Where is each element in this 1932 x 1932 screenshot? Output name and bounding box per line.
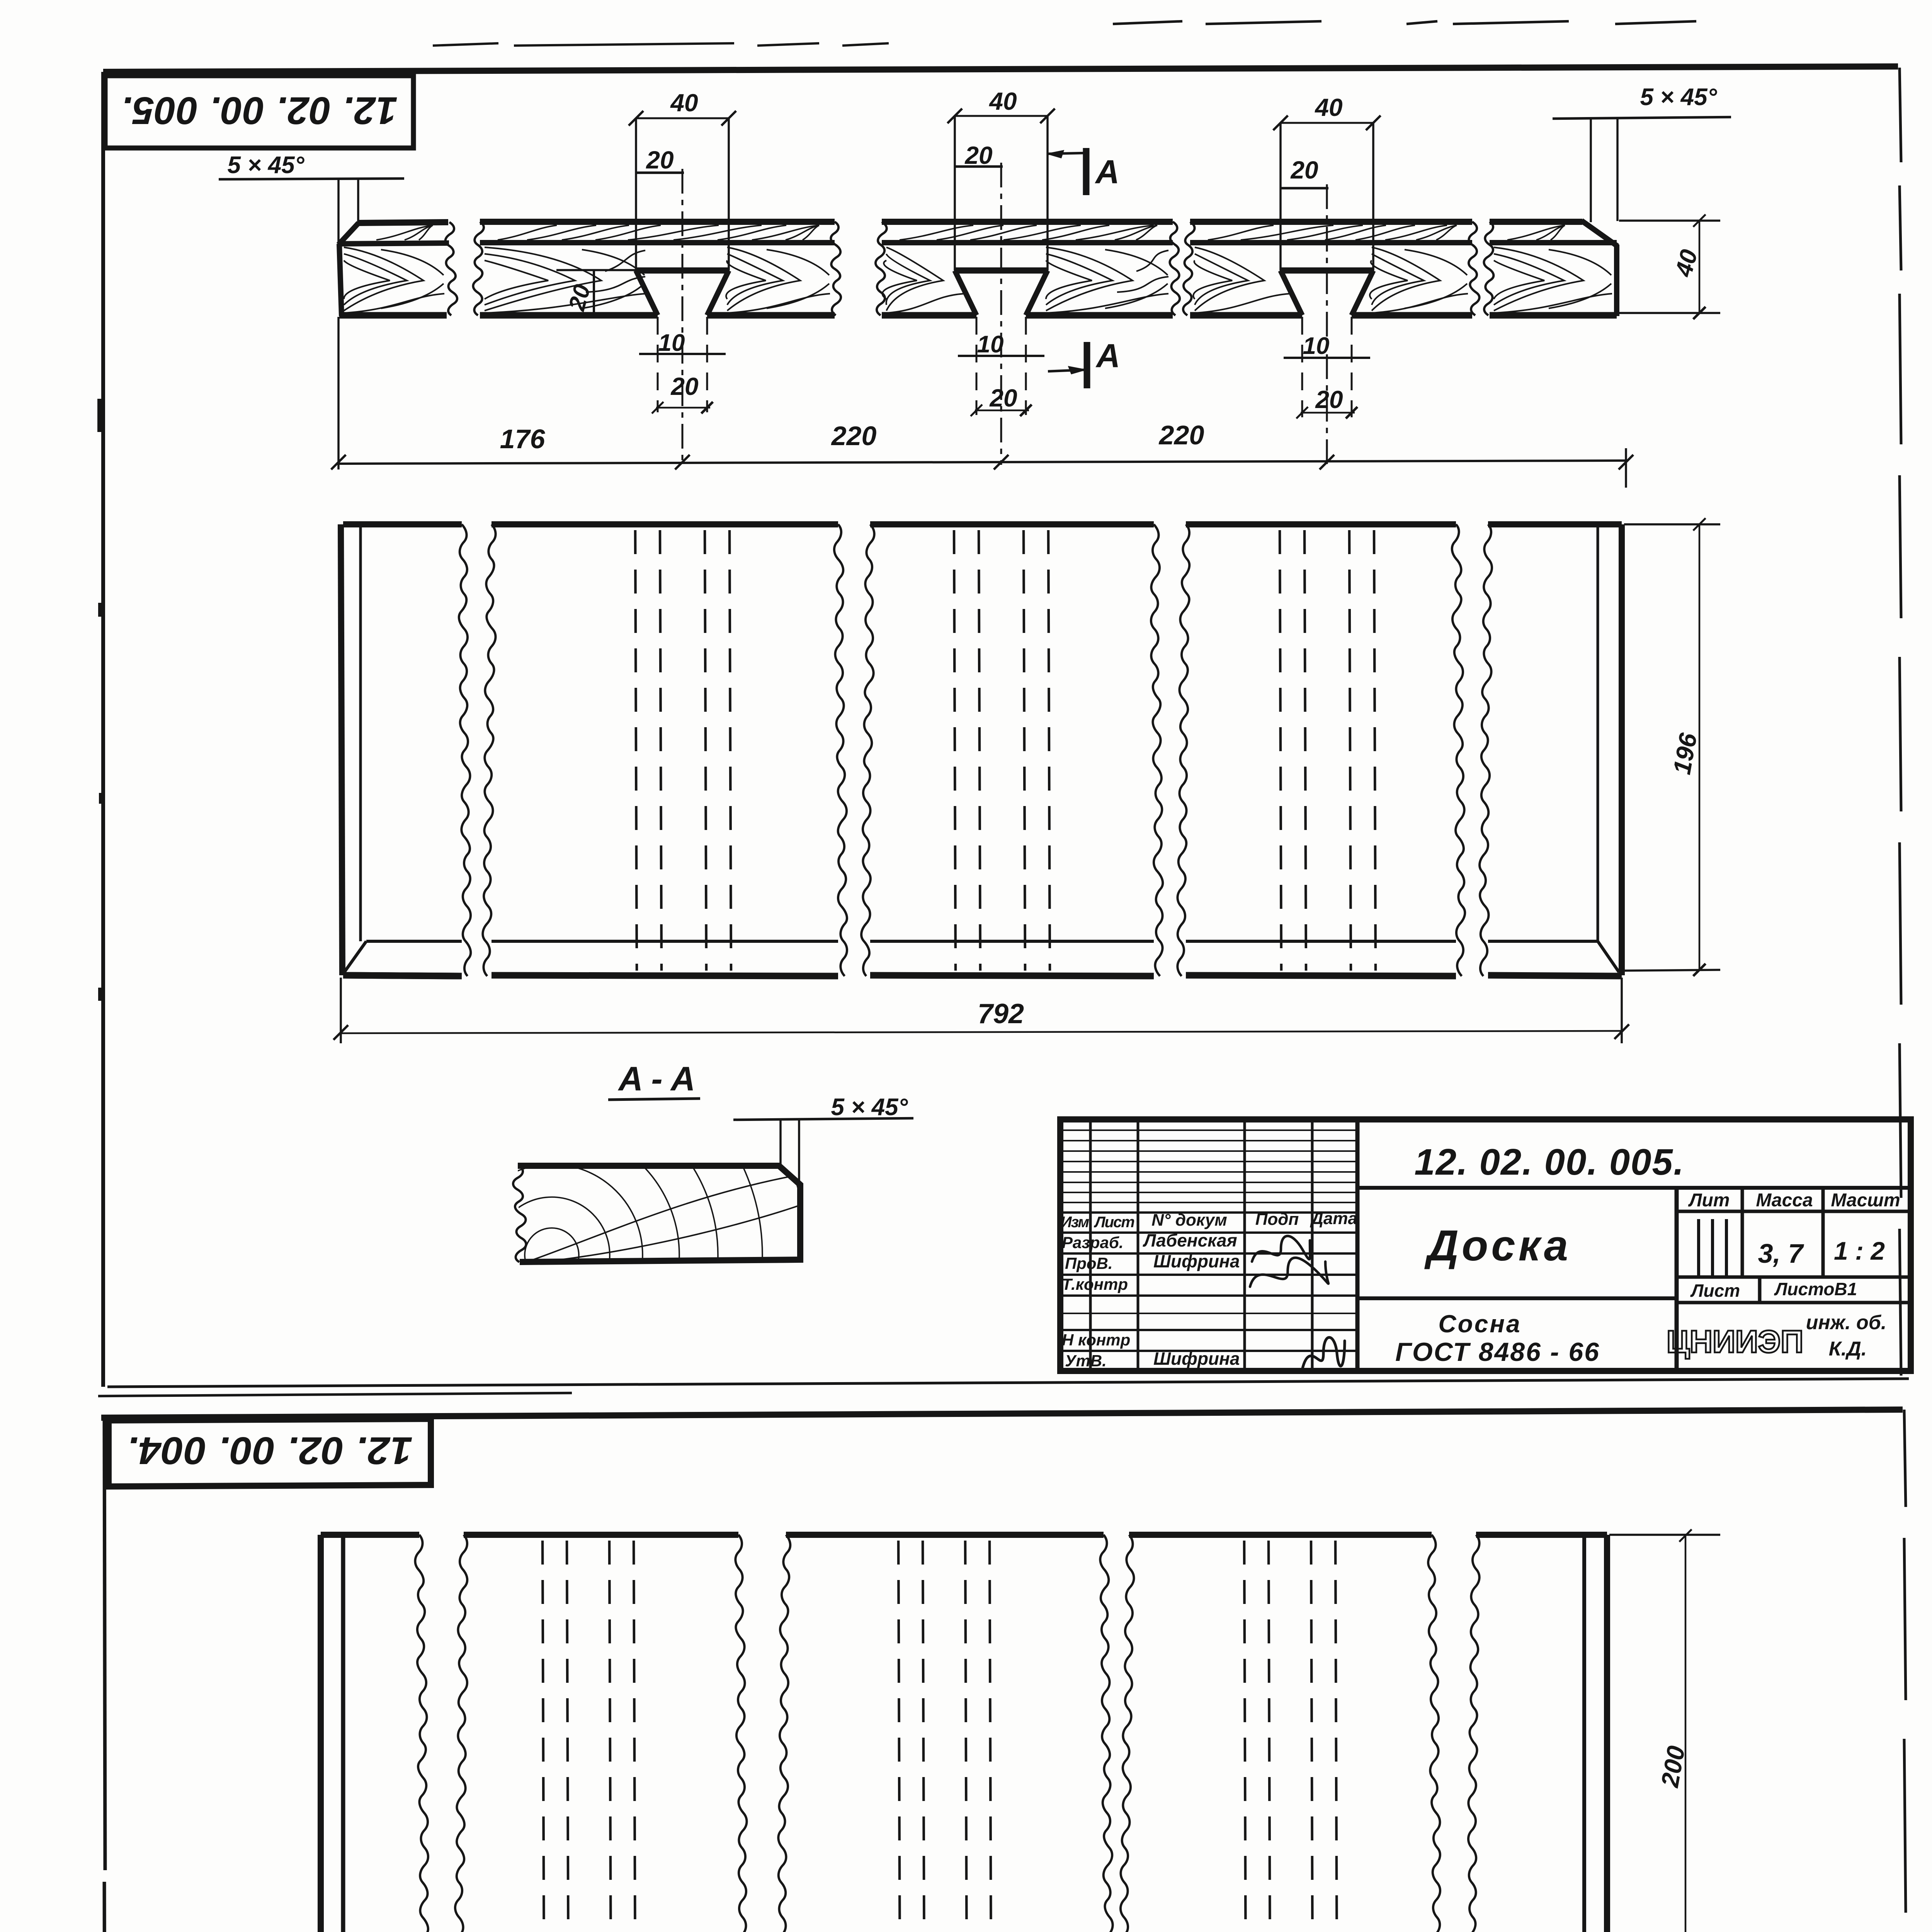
svg-text:3, 7: 3, 7 <box>1758 1238 1804 1269</box>
svg-text:A - A: A - A <box>618 1060 696 1098</box>
svg-text:Изм: Изм <box>1061 1214 1089 1231</box>
svg-text:12. 02. 00. 005.: 12. 02. 00. 005. <box>121 89 398 132</box>
svg-text:176: 176 <box>500 424 546 454</box>
svg-text:ПроВ.: ПроВ. <box>1065 1254 1113 1272</box>
svg-text:20: 20 <box>646 146 673 174</box>
svg-text:40: 40 <box>988 87 1017 115</box>
svg-text:ГОСТ 8486 - 66: ГОСТ 8486 - 66 <box>1395 1337 1600 1367</box>
svg-text:792: 792 <box>978 998 1024 1029</box>
svg-text:40: 40 <box>1314 94 1342 121</box>
svg-text:УтВ.: УтВ. <box>1065 1352 1107 1370</box>
svg-text:Лист: Лист <box>1094 1214 1134 1231</box>
svg-text:ЦНИИЭП: ЦНИИЭП <box>1667 1324 1803 1359</box>
svg-text:ЛистоВ1: ЛистоВ1 <box>1774 1279 1857 1299</box>
svg-text:Доска: Доска <box>1424 1221 1571 1270</box>
svg-text:инж. об.: инж. об. <box>1806 1311 1887 1334</box>
svg-text:5 × 45°: 5 × 45° <box>831 1094 908 1121</box>
svg-text:Лабенская: Лабенская <box>1143 1230 1237 1250</box>
svg-text:A: A <box>1095 153 1119 190</box>
svg-text:10: 10 <box>977 331 1004 358</box>
svg-text:40: 40 <box>670 89 698 117</box>
svg-text:20: 20 <box>989 384 1017 412</box>
svg-text:5 × 45°: 5 × 45° <box>228 152 305 179</box>
svg-text:Шифрина: Шифрина <box>1153 1251 1240 1271</box>
svg-text:К.Д.: К.Д. <box>1829 1338 1867 1360</box>
svg-text:220: 220 <box>831 421 877 451</box>
svg-text:20: 20 <box>1290 156 1318 184</box>
svg-text:Подп: Подп <box>1255 1210 1299 1229</box>
svg-text:Н контр: Н контр <box>1062 1331 1130 1349</box>
svg-text:A: A <box>1095 337 1120 374</box>
svg-text:220: 220 <box>1158 420 1204 450</box>
svg-text:Т.контр: Т.контр <box>1062 1275 1128 1293</box>
svg-text:Разраб.: Разраб. <box>1062 1233 1124 1252</box>
svg-text:Дата: Дата <box>1310 1209 1357 1228</box>
svg-text:20: 20 <box>964 141 992 169</box>
svg-text:12. 02. 00. 005.: 12. 02. 00. 005. <box>1414 1141 1684 1183</box>
svg-text:Шифрина: Шифрина <box>1153 1349 1240 1369</box>
svg-text:Лит: Лит <box>1688 1190 1730 1211</box>
svg-text:10: 10 <box>1303 333 1330 359</box>
svg-text:10: 10 <box>658 330 685 356</box>
svg-text:Масшт: Масшт <box>1831 1190 1900 1211</box>
svg-text:Масса: Масса <box>1756 1190 1813 1211</box>
svg-text:20: 20 <box>670 372 698 400</box>
svg-text:5 × 45°: 5 × 45° <box>1640 84 1718 111</box>
svg-text:Сосна: Сосна <box>1438 1310 1521 1338</box>
svg-text:20: 20 <box>1315 386 1343 413</box>
svg-text:1 : 2: 1 : 2 <box>1834 1236 1885 1265</box>
svg-text:12. 02. 00. 004.: 12. 02. 00. 004. <box>127 1429 413 1472</box>
svg-text:N° докум: N° докум <box>1151 1211 1227 1230</box>
svg-text:Лист: Лист <box>1690 1281 1740 1301</box>
